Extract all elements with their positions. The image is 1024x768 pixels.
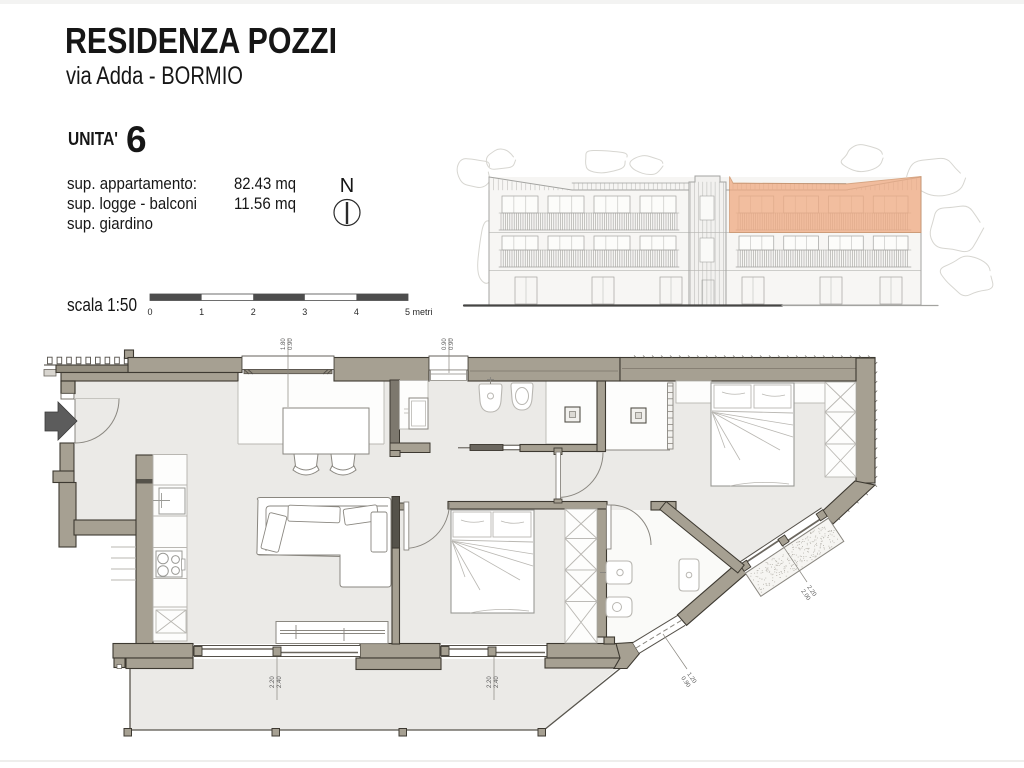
svg-text:2.40: 2.40 bbox=[494, 676, 500, 688]
svg-text:82.43 mq: 82.43 mq bbox=[234, 175, 296, 193]
svg-text:sup. logge - balconi: sup. logge - balconi bbox=[67, 195, 197, 213]
svg-text:UNITA': UNITA' bbox=[68, 128, 118, 149]
svg-text:sup. giardino: sup. giardino bbox=[67, 215, 153, 233]
svg-text:4: 4 bbox=[354, 307, 359, 317]
svg-text:5 metri: 5 metri bbox=[405, 307, 433, 317]
svg-text:0.90: 0.90 bbox=[288, 338, 294, 350]
svg-text:sup. appartamento:: sup. appartamento: bbox=[67, 175, 197, 193]
svg-text:2.40: 2.40 bbox=[277, 676, 283, 688]
svg-text:0: 0 bbox=[147, 307, 152, 317]
svg-text:11.56 mq: 11.56 mq bbox=[234, 195, 296, 213]
svg-text:1.80: 1.80 bbox=[281, 338, 287, 350]
svg-text:1: 1 bbox=[199, 307, 204, 317]
svg-text:2.20: 2.20 bbox=[487, 676, 493, 688]
svg-text:0.90: 0.90 bbox=[442, 338, 448, 350]
svg-text:3: 3 bbox=[302, 307, 307, 317]
svg-text:via Adda - BORMIO: via Adda - BORMIO bbox=[66, 62, 243, 90]
svg-text:N: N bbox=[340, 175, 354, 197]
svg-text:2: 2 bbox=[251, 307, 256, 317]
svg-text:6: 6 bbox=[126, 119, 147, 160]
svg-text:0.90: 0.90 bbox=[449, 338, 455, 350]
svg-text:2.20: 2.20 bbox=[270, 676, 276, 688]
svg-text:scala 1:50: scala 1:50 bbox=[67, 295, 137, 315]
svg-text:RESIDENZA POZZI: RESIDENZA POZZI bbox=[65, 20, 337, 61]
